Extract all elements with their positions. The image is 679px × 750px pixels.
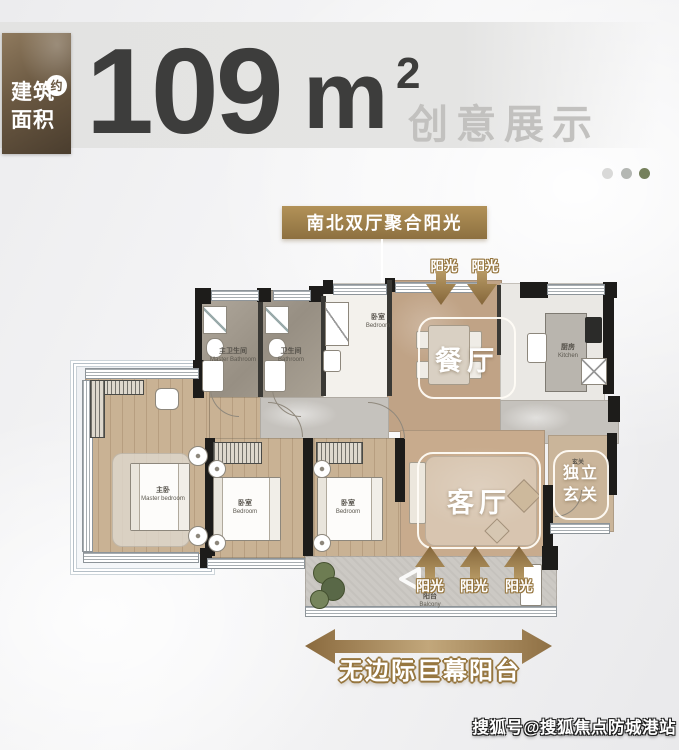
stove (585, 317, 602, 343)
label-bathroom: 卫生间Bathroom (263, 348, 319, 364)
watermark: 搜狐号@搜狐焦点防城港站 (436, 714, 676, 738)
nightstand-lamp (313, 534, 331, 552)
wall (608, 396, 620, 422)
dining-room-tag: 餐厅 (418, 317, 516, 399)
nightstand-lamp (188, 526, 208, 546)
floorplan: 主卫生间Master Bathroom 卫生间Bathroom 卧室Bedroo… (60, 276, 622, 626)
window (83, 552, 199, 563)
living-room-tag: 客厅 (417, 452, 541, 549)
window (207, 558, 305, 569)
approx-badge: 约 (46, 75, 67, 96)
sunlight-down-arrow-icon (426, 271, 456, 305)
nightstand-lamp (208, 534, 226, 552)
callout-banner: 南北双厅聚合阳光 (282, 206, 487, 239)
label-bedroom-north: 卧室Bedroom (353, 314, 403, 330)
label-master-bathroom: 主卫生间Master Bathroom (198, 348, 268, 364)
sunlight-label-bottom-1: 阳光 (413, 576, 447, 596)
wall (303, 438, 313, 556)
sunlight-down-arrow-icon (467, 271, 497, 305)
pager-dot-1[interactable] (602, 168, 613, 179)
sunlight-label-bottom-2: 阳光 (457, 576, 491, 596)
kitchen-shelf (581, 358, 607, 385)
window (211, 290, 259, 301)
entrance-door-sill (550, 523, 610, 534)
entrance-tag: 独立 玄关 (553, 450, 609, 520)
area-unit-superscript: 2 (396, 52, 420, 96)
glass-door-panel (325, 302, 349, 346)
window (547, 284, 605, 295)
wall (603, 282, 617, 298)
wall (395, 438, 405, 502)
window (85, 368, 199, 379)
area-unit: m (303, 48, 388, 144)
plant (310, 590, 329, 609)
wall (520, 282, 548, 298)
shower (265, 306, 289, 334)
wall (323, 280, 333, 294)
nightstand-lamp (313, 460, 331, 478)
building-area-box: 建筑 面积 约 (2, 33, 71, 154)
window (273, 290, 311, 301)
nightstand-lamp (188, 446, 208, 466)
stool (155, 388, 179, 410)
wall (195, 288, 211, 304)
wall (257, 288, 271, 302)
desk (323, 350, 341, 372)
subtitle: 创意展示 (408, 92, 600, 150)
poster-canvas: 建筑 面积 约 109 m 2 创意展示 南北双厅聚合阳光 (0, 0, 679, 750)
label-bedroom-2: 卧室Bedroom (220, 500, 270, 516)
area-number: 109 (86, 30, 281, 152)
sunlight-up-arrow-icon (460, 546, 490, 580)
wardrobe (90, 380, 105, 438)
bathroom-sink (264, 360, 286, 392)
wall (387, 280, 392, 396)
shower (203, 306, 227, 334)
sunlight-up-arrow-icon (504, 546, 534, 580)
pager-dot-3-active[interactable] (639, 168, 650, 179)
sunlight-label-bottom-3: 阳光 (502, 576, 536, 596)
nightstand-lamp (208, 460, 226, 478)
window (333, 284, 387, 295)
label-master-bedroom: 主卧Master bedroom (133, 487, 193, 503)
pager-dot-2[interactable] (621, 168, 632, 179)
balcony-banner: 无边际巨幕阳台 (320, 651, 540, 686)
label-kitchen: 厨房Kitchen (543, 344, 593, 360)
bathroom-sink (202, 360, 224, 392)
label-bedroom-3: 卧室Bedroom (323, 500, 373, 516)
